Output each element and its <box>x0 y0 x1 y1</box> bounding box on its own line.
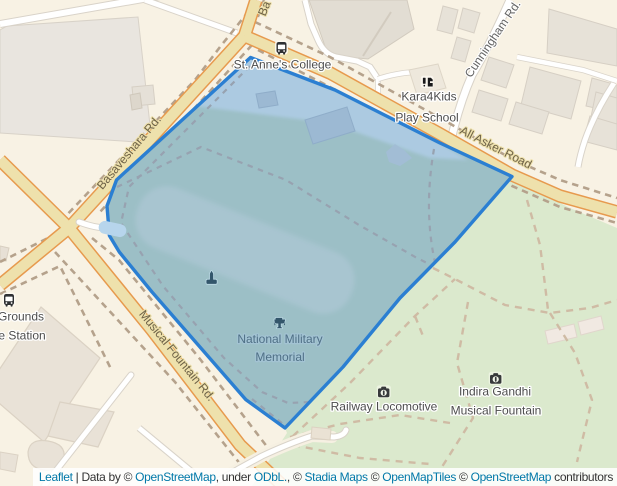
svg-text:Kara4Kids: Kara4Kids <box>401 90 456 104</box>
svg-text:National Military: National Military <box>237 332 322 346</box>
svg-text:Musical Fountain: Musical Fountain <box>451 404 542 418</box>
svg-text:Memorial: Memorial <box>255 350 304 364</box>
svg-text:Grounds: Grounds <box>0 310 44 324</box>
svg-text:Play School: Play School <box>395 111 458 125</box>
svg-text:e Station: e Station <box>0 329 46 343</box>
svg-text:St. Anne's College: St. Anne's College <box>234 58 332 72</box>
svg-text:Indira Gandhi: Indira Gandhi <box>459 385 531 399</box>
svg-text:Railway Locomotive: Railway Locomotive <box>331 400 438 414</box>
